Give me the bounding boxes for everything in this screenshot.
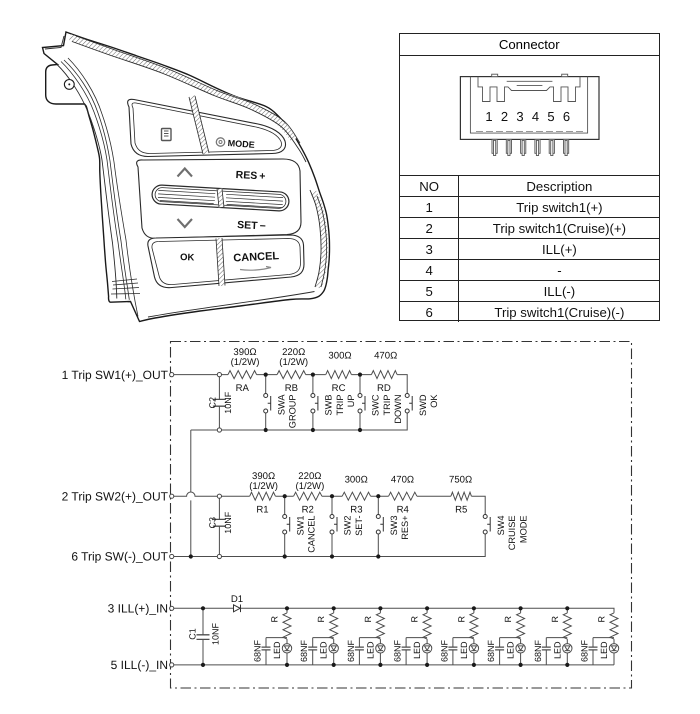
svg-text:OK: OK bbox=[429, 394, 439, 408]
svg-text:R2: R2 bbox=[302, 504, 314, 515]
svg-text:MODE: MODE bbox=[518, 516, 528, 544]
svg-text:C1: C1 bbox=[188, 628, 198, 640]
svg-text:RB: RB bbox=[285, 383, 298, 394]
svg-text:LED: LED bbox=[319, 641, 329, 659]
svg-text:68NF: 68NF bbox=[580, 640, 590, 663]
svg-text:R1: R1 bbox=[256, 504, 268, 515]
svg-text:(1/2W): (1/2W) bbox=[249, 481, 278, 492]
svg-text:R: R bbox=[503, 616, 513, 623]
svg-text:300Ω: 300Ω bbox=[345, 475, 368, 486]
svg-text:RC: RC bbox=[332, 383, 346, 394]
svg-text:68NF: 68NF bbox=[393, 640, 403, 663]
svg-text:2 Trip SW2(+)_OUT: 2 Trip SW2(+)_OUT bbox=[62, 489, 169, 503]
svg-text:UP: UP bbox=[346, 395, 356, 408]
svg-text:RES+: RES+ bbox=[400, 516, 410, 540]
svg-text:C3: C3 bbox=[207, 517, 217, 529]
svg-text:C2: C2 bbox=[207, 397, 217, 409]
svg-text:SW1: SW1 bbox=[295, 516, 305, 536]
svg-text:CRUISE: CRUISE bbox=[507, 516, 517, 551]
svg-text:LED: LED bbox=[506, 641, 516, 659]
svg-text:10NF: 10NF bbox=[223, 391, 233, 414]
svg-text:470Ω: 470Ω bbox=[391, 475, 414, 486]
svg-text:DOWN: DOWN bbox=[393, 395, 403, 424]
svg-text:300Ω: 300Ω bbox=[328, 351, 351, 362]
svg-text:(1/2W): (1/2W) bbox=[296, 481, 325, 492]
svg-text:R: R bbox=[550, 616, 560, 623]
svg-text:R: R bbox=[270, 616, 280, 623]
svg-text:6 Trip SW(-)_OUT: 6 Trip SW(-)_OUT bbox=[71, 550, 168, 564]
svg-text:10NF: 10NF bbox=[211, 622, 221, 645]
svg-text:68NF: 68NF bbox=[486, 640, 496, 663]
svg-text:TRIP: TRIP bbox=[382, 395, 392, 416]
svg-text:CANCEL: CANCEL bbox=[307, 516, 317, 553]
svg-text:R4: R4 bbox=[397, 504, 410, 515]
svg-text:SW2: SW2 bbox=[343, 516, 353, 536]
svg-text:GROUP: GROUP bbox=[288, 395, 298, 429]
svg-text:LED: LED bbox=[459, 641, 469, 659]
svg-text:R3: R3 bbox=[350, 504, 362, 515]
svg-text:TRIP: TRIP bbox=[335, 395, 345, 416]
svg-text:SWB: SWB bbox=[324, 395, 334, 416]
svg-text:SWD: SWD bbox=[418, 394, 428, 416]
svg-text:SET-: SET- bbox=[354, 516, 364, 536]
svg-text:R: R bbox=[410, 616, 420, 623]
svg-text:LED: LED bbox=[552, 641, 562, 659]
svg-text:SWA: SWA bbox=[276, 394, 286, 415]
svg-text:68NF: 68NF bbox=[346, 640, 356, 663]
svg-text:SW4: SW4 bbox=[496, 516, 506, 536]
svg-text:68NF: 68NF bbox=[439, 640, 449, 663]
svg-text:D1: D1 bbox=[231, 594, 243, 605]
svg-text:68NF: 68NF bbox=[533, 640, 543, 663]
svg-text:RD: RD bbox=[377, 383, 391, 394]
svg-text:5 ILL(-)_IN: 5 ILL(-)_IN bbox=[111, 658, 168, 672]
svg-text:10NF: 10NF bbox=[223, 511, 233, 534]
svg-text:SWC: SWC bbox=[371, 394, 381, 416]
svg-text:(1/2W): (1/2W) bbox=[279, 357, 308, 368]
svg-text:RA: RA bbox=[236, 383, 250, 394]
svg-text:(1/2W): (1/2W) bbox=[231, 357, 260, 368]
svg-text:R5: R5 bbox=[455, 504, 467, 515]
svg-text:LED: LED bbox=[272, 641, 282, 659]
svg-text:68NF: 68NF bbox=[253, 640, 263, 663]
svg-text:LED: LED bbox=[365, 641, 375, 659]
svg-text:LED: LED bbox=[412, 641, 422, 659]
svg-text:R: R bbox=[316, 616, 326, 623]
svg-text:3 ILL(+)_IN: 3 ILL(+)_IN bbox=[108, 602, 168, 616]
svg-text:470Ω: 470Ω bbox=[374, 351, 397, 362]
svg-text:R: R bbox=[363, 616, 373, 623]
svg-text:68NF: 68NF bbox=[299, 640, 309, 663]
svg-text:LED: LED bbox=[599, 641, 609, 659]
svg-text:1 Trip SW1(+)_OUT: 1 Trip SW1(+)_OUT bbox=[62, 368, 169, 382]
svg-text:R: R bbox=[597, 616, 607, 623]
svg-text:750Ω: 750Ω bbox=[449, 475, 472, 486]
svg-text:R: R bbox=[456, 616, 466, 623]
svg-text:SW3: SW3 bbox=[389, 516, 399, 536]
